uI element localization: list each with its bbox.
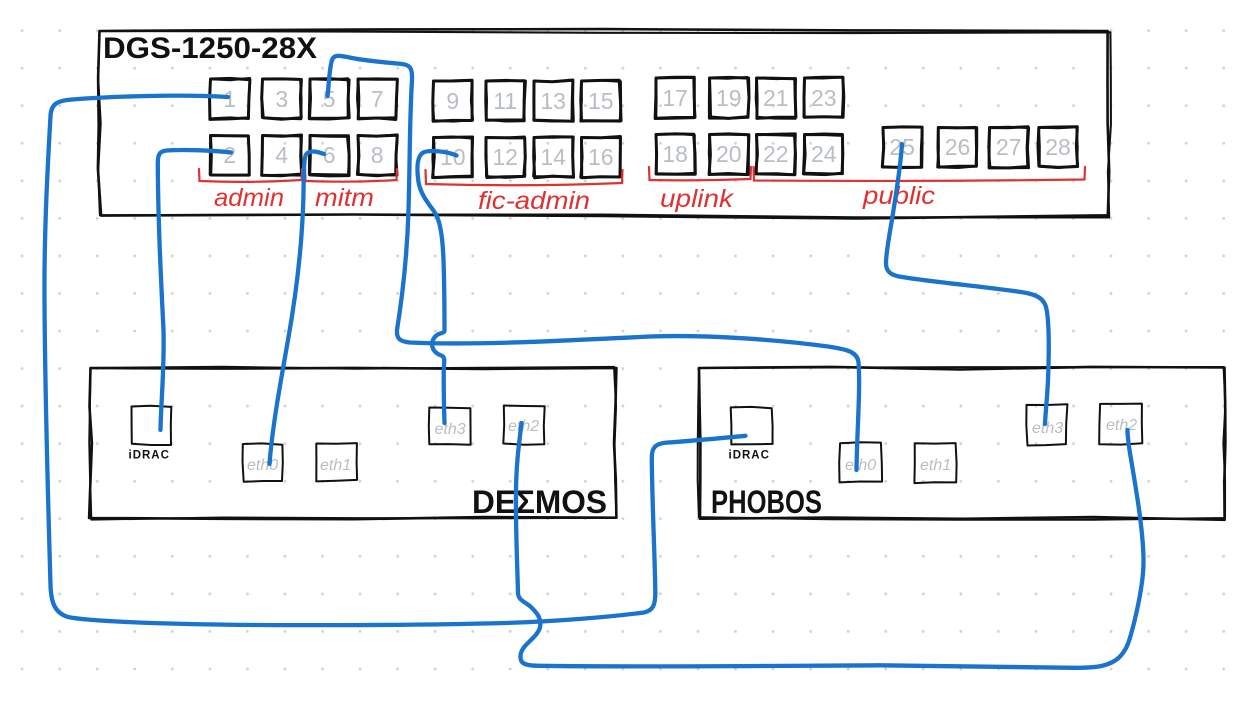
svg-text:22: 22	[763, 141, 789, 167]
svg-text:DEΣMOS: DEΣMOS	[472, 484, 607, 520]
svg-text:23: 23	[811, 85, 837, 111]
svg-text:9: 9	[446, 88, 459, 114]
svg-text:eth3: eth3	[435, 421, 466, 438]
svg-text:uplink: uplink	[660, 185, 735, 213]
svg-text:iDRAC: iDRAC	[129, 450, 170, 462]
svg-text:4: 4	[275, 142, 288, 168]
svg-text:28: 28	[1045, 134, 1071, 160]
svg-text:20: 20	[716, 141, 742, 167]
svg-text:eth0: eth0	[845, 457, 876, 474]
svg-text:admin: admin	[214, 184, 284, 212]
svg-text:24: 24	[811, 141, 837, 167]
svg-text:eth3: eth3	[1032, 420, 1063, 437]
svg-text:15: 15	[588, 88, 614, 114]
svg-text:eth1: eth1	[920, 457, 951, 474]
svg-text:fic-admin: fic-admin	[478, 187, 590, 215]
svg-text:DGS-1250-28X: DGS-1250-28X	[103, 32, 317, 65]
svg-text:13: 13	[540, 88, 566, 114]
svg-text:26: 26	[945, 134, 971, 160]
svg-text:3: 3	[275, 86, 288, 112]
svg-text:eth0: eth0	[247, 457, 278, 474]
svg-text:iDRAC: iDRAC	[729, 450, 770, 462]
svg-text:18: 18	[662, 141, 688, 167]
svg-text:12: 12	[492, 144, 518, 170]
svg-text:8: 8	[371, 142, 384, 168]
svg-text:mitm: mitm	[315, 184, 374, 212]
svg-text:17: 17	[662, 85, 688, 111]
svg-text:11: 11	[493, 88, 517, 114]
svg-text:14: 14	[540, 144, 566, 170]
svg-text:16: 16	[588, 144, 614, 170]
svg-text:eth2: eth2	[1106, 417, 1137, 434]
svg-text:21: 21	[763, 85, 789, 111]
svg-text:2: 2	[223, 142, 236, 168]
svg-text:10: 10	[440, 144, 466, 170]
svg-text:PHOBOS: PHOBOS	[711, 484, 822, 520]
svg-text:27: 27	[996, 134, 1022, 160]
svg-text:eth2: eth2	[508, 418, 539, 435]
svg-text:eth1: eth1	[320, 457, 351, 474]
svg-text:7: 7	[371, 86, 384, 112]
svg-text:19: 19	[716, 85, 742, 111]
